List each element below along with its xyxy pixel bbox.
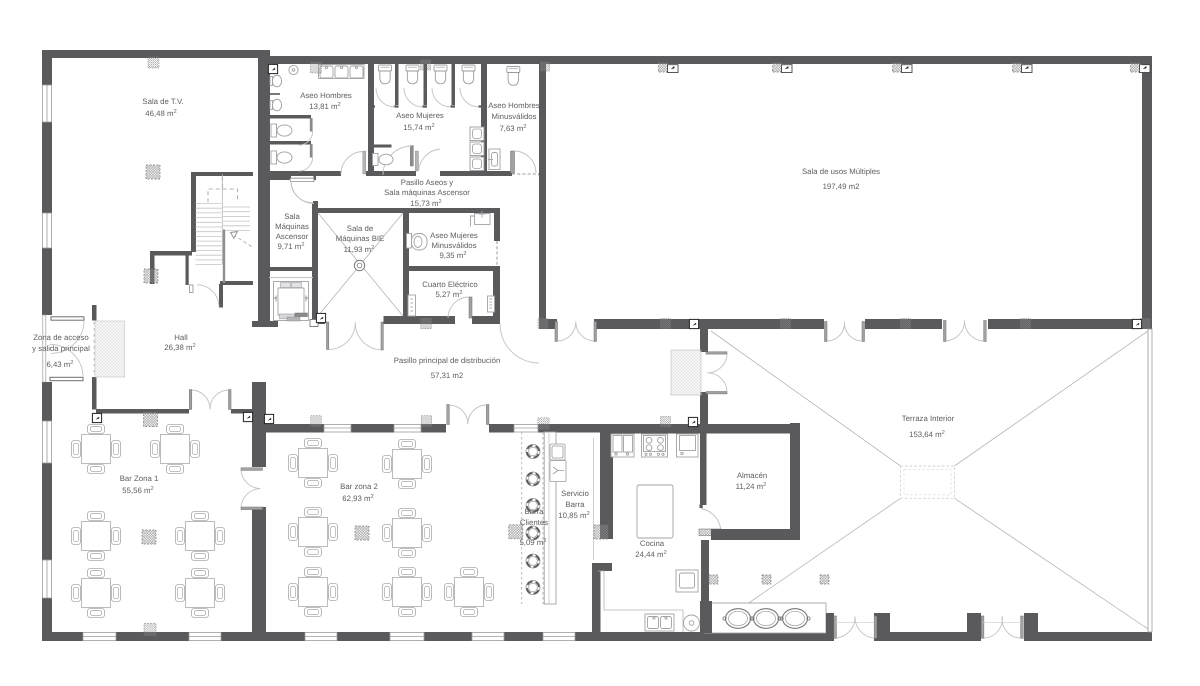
svg-text:Bar Zona 1: Bar Zona 1	[120, 474, 159, 483]
svg-text:7,63 m2: 7,63 m2	[499, 123, 526, 133]
svg-text:Cocina: Cocina	[640, 539, 665, 548]
svg-text:y salida principal: y salida principal	[32, 344, 90, 353]
svg-text:10,85 m2: 10,85 m2	[558, 510, 589, 520]
svg-text:9,71 m2: 9,71 m2	[277, 241, 304, 251]
svg-text:Barra: Barra	[524, 507, 544, 516]
svg-text:Sala de usos Múltiples: Sala de usos Múltiples	[802, 167, 880, 176]
svg-text:Sala de T.V.: Sala de T.V.	[142, 97, 183, 106]
svg-text:5,27 m2: 5,27 m2	[435, 289, 462, 299]
svg-text:55,56 m2: 55,56 m2	[122, 485, 153, 495]
svg-text:Minusválidos: Minusválidos	[491, 112, 536, 121]
svg-text:6,43 m2: 6,43 m2	[46, 359, 73, 369]
svg-text:15,73 m2: 15,73 m2	[410, 198, 441, 208]
svg-text:Clientes: Clientes	[520, 518, 548, 527]
svg-text:46,48 m2: 46,48 m2	[145, 108, 176, 118]
svg-text:5,09 m2: 5,09 m2	[519, 537, 546, 547]
svg-text:Sala máquinas Ascensor: Sala máquinas Ascensor	[384, 188, 470, 197]
svg-text:Minusválidos: Minusválidos	[431, 241, 476, 250]
svg-text:Zona de acceso: Zona de acceso	[33, 333, 89, 342]
svg-text:Bar zona 2: Bar zona 2	[340, 482, 378, 491]
svg-text:Aseo Mujeres: Aseo Mujeres	[396, 111, 444, 120]
svg-text:Aseo Hombres: Aseo Hombres	[300, 91, 352, 100]
svg-text:Aseo Mujeres: Aseo Mujeres	[430, 231, 478, 240]
svg-text:11,93 m2: 11,93 m2	[344, 244, 375, 254]
svg-text:Máquinas: Máquinas	[275, 222, 309, 231]
svg-text:24,44 m2: 24,44 m2	[635, 549, 666, 559]
svg-text:Máquinas BIE: Máquinas BIE	[336, 234, 385, 243]
svg-text:13,81 m2: 13,81 m2	[309, 101, 340, 111]
svg-text:Pasillo principal de distribuc: Pasillo principal de distribución	[394, 356, 501, 365]
svg-text:Hall: Hall	[174, 333, 188, 342]
svg-text:11,24 m2: 11,24 m2	[736, 481, 767, 491]
svg-text:197,49 m2: 197,49 m2	[823, 182, 860, 191]
svg-text:Ascensor: Ascensor	[276, 232, 309, 241]
svg-text:26,38 m2: 26,38 m2	[164, 342, 195, 352]
svg-text:Pasillo Aseos y: Pasillo Aseos y	[401, 178, 454, 187]
svg-text:Terraza Interior: Terraza Interior	[902, 414, 955, 423]
svg-text:Barra: Barra	[565, 500, 585, 509]
svg-text:Servicio: Servicio	[561, 489, 589, 498]
svg-text:15,74 m2: 15,74 m2	[403, 122, 434, 132]
svg-text:Almacén: Almacén	[737, 471, 767, 480]
svg-text:153,64 m2: 153,64 m2	[909, 429, 945, 439]
svg-text:Cuarto Eléctrico: Cuarto Eléctrico	[422, 280, 478, 289]
svg-text:9,35 m2: 9,35 m2	[439, 250, 466, 260]
svg-text:Sala de: Sala de	[347, 224, 373, 233]
svg-text:57,31 m2: 57,31 m2	[431, 371, 464, 380]
svg-text:Aseo Hombres: Aseo Hombres	[488, 101, 540, 110]
svg-text:62,93 m2: 62,93 m2	[342, 493, 373, 503]
svg-text:Sala: Sala	[284, 212, 300, 221]
